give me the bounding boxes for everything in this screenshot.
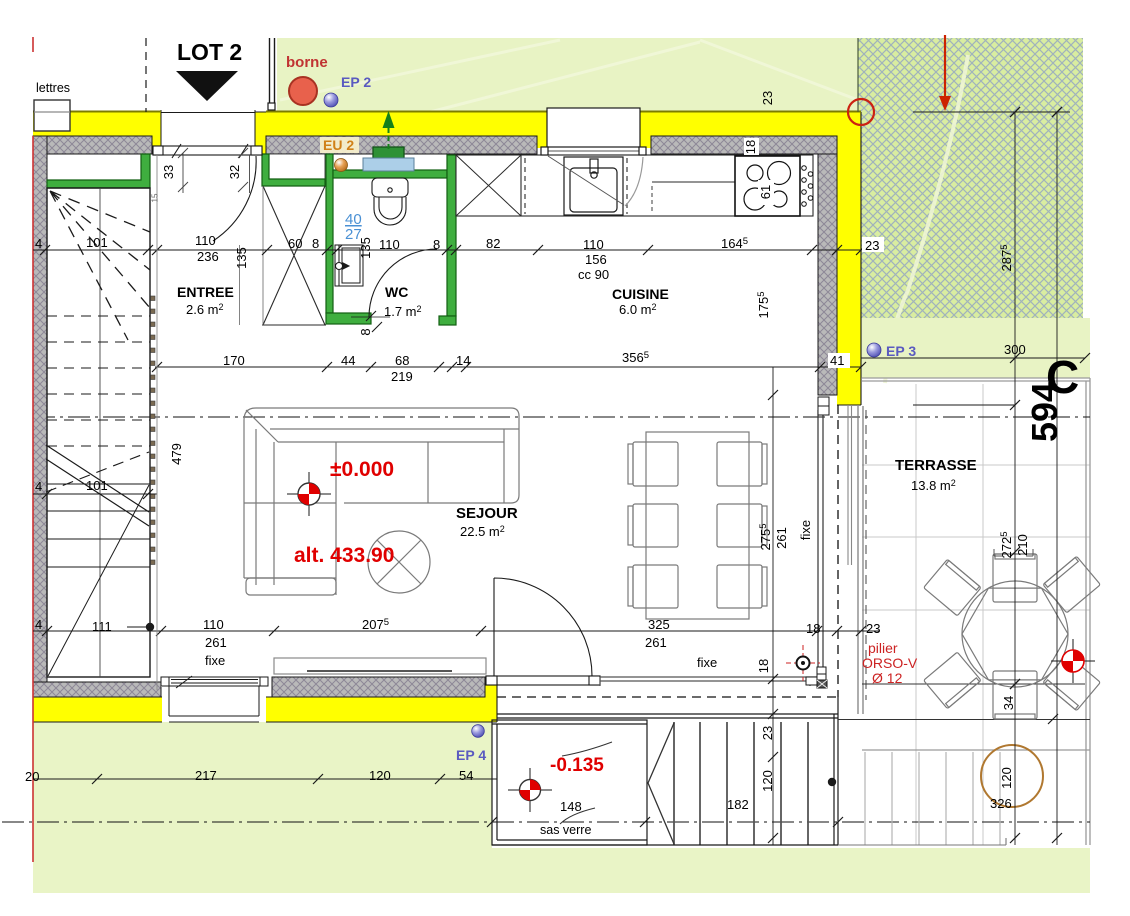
svg-text:alt. 433.90: alt. 433.90: [294, 544, 394, 567]
svg-text:sas verre: sas verre: [540, 823, 591, 837]
svg-text:18: 18: [806, 621, 820, 636]
svg-text:182: 182: [727, 797, 749, 812]
svg-text:6.0 m2: 6.0 m2: [619, 302, 657, 317]
svg-text:pilier: pilier: [868, 640, 898, 656]
svg-text:8: 8: [433, 237, 440, 252]
svg-text:60: 60: [288, 236, 302, 251]
svg-text:-0.135: -0.135: [550, 755, 604, 776]
svg-text:210: 210: [1015, 534, 1030, 556]
svg-text:14: 14: [456, 353, 470, 368]
svg-text:110: 110: [203, 617, 224, 632]
svg-text:4: 4: [35, 236, 42, 251]
svg-text:SEJOUR: SEJOUR: [456, 505, 518, 522]
svg-text:8: 8: [312, 236, 319, 251]
svg-text:18: 18: [743, 140, 758, 154]
svg-text:34: 34: [1001, 696, 1016, 710]
svg-text:C: C: [1046, 351, 1079, 403]
svg-text:68: 68: [395, 353, 409, 368]
svg-text:lettres: lettres: [36, 81, 70, 95]
svg-text:217: 217: [195, 768, 217, 783]
svg-text:325: 325: [648, 617, 670, 632]
svg-text:23: 23: [865, 238, 879, 253]
svg-text:23: 23: [866, 621, 880, 636]
svg-text:EP 4: EP 4: [456, 747, 486, 763]
svg-text:cc 90: cc 90: [578, 267, 609, 282]
svg-text:148: 148: [560, 799, 582, 814]
svg-text:22.5 m2: 22.5 m2: [460, 524, 505, 539]
svg-text:Ø 12: Ø 12: [872, 670, 903, 686]
svg-text:1.7 m2: 1.7 m2: [384, 304, 422, 319]
svg-text:20: 20: [25, 769, 39, 784]
svg-text:219: 219: [391, 369, 413, 384]
svg-text:101: 101: [86, 478, 108, 493]
svg-text:44: 44: [341, 353, 355, 368]
svg-text:TERRASSE: TERRASSE: [895, 457, 977, 474]
svg-text:ORSO-V: ORSO-V: [862, 655, 918, 671]
svg-text:111: 111: [92, 619, 112, 634]
svg-text:41: 41: [830, 353, 844, 368]
svg-text:ENTREE: ENTREE: [177, 284, 234, 300]
svg-text:33: 33: [161, 165, 176, 179]
svg-text:fixe: fixe: [697, 655, 717, 670]
svg-text:110: 110: [195, 233, 216, 248]
svg-text:300: 300: [1004, 342, 1026, 357]
svg-text:110: 110: [379, 237, 400, 252]
svg-text:32: 32: [227, 165, 242, 179]
svg-text:120: 120: [999, 767, 1014, 789]
svg-text:EU 2: EU 2: [323, 137, 354, 153]
svg-text:LOT 2: LOT 2: [177, 39, 242, 65]
svg-text:170: 170: [223, 353, 245, 368]
svg-text:fixe: fixe: [798, 520, 813, 540]
svg-text:135: 135: [234, 247, 249, 269]
svg-text:261: 261: [205, 635, 227, 650]
svg-text:fixe: fixe: [205, 653, 225, 668]
svg-text:borne: borne: [286, 54, 328, 71]
svg-text:156: 156: [585, 252, 607, 267]
svg-text:120: 120: [760, 770, 775, 792]
svg-text:±0.000: ±0.000: [330, 458, 394, 481]
svg-text:23: 23: [760, 726, 775, 740]
svg-text:WC: WC: [385, 284, 408, 300]
svg-text:261: 261: [645, 635, 667, 650]
svg-text:120: 120: [369, 768, 391, 783]
svg-text:CUISINE: CUISINE: [612, 286, 669, 302]
svg-text:4: 4: [35, 617, 42, 632]
svg-text:13.8 m2: 13.8 m2: [911, 478, 956, 493]
svg-text:110: 110: [583, 237, 604, 252]
svg-text:101: 101: [86, 235, 108, 250]
svg-text:23: 23: [760, 91, 775, 105]
svg-text:82: 82: [486, 236, 500, 251]
svg-text:2.6 m2: 2.6 m2: [186, 302, 224, 317]
svg-text:261: 261: [774, 527, 789, 549]
svg-text:EP 2: EP 2: [341, 74, 371, 90]
svg-text:54: 54: [459, 768, 473, 783]
svg-text:15: 15: [151, 193, 160, 202]
svg-text:EP 3: EP 3: [886, 343, 916, 359]
svg-text:135: 135: [358, 237, 373, 259]
svg-text:4: 4: [35, 479, 42, 494]
svg-text:61: 61: [758, 185, 773, 199]
svg-text:236: 236: [197, 249, 219, 264]
svg-text:479: 479: [169, 443, 184, 465]
svg-text:18: 18: [756, 659, 771, 673]
svg-text:326: 326: [990, 796, 1012, 811]
svg-text:8: 8: [358, 328, 373, 335]
